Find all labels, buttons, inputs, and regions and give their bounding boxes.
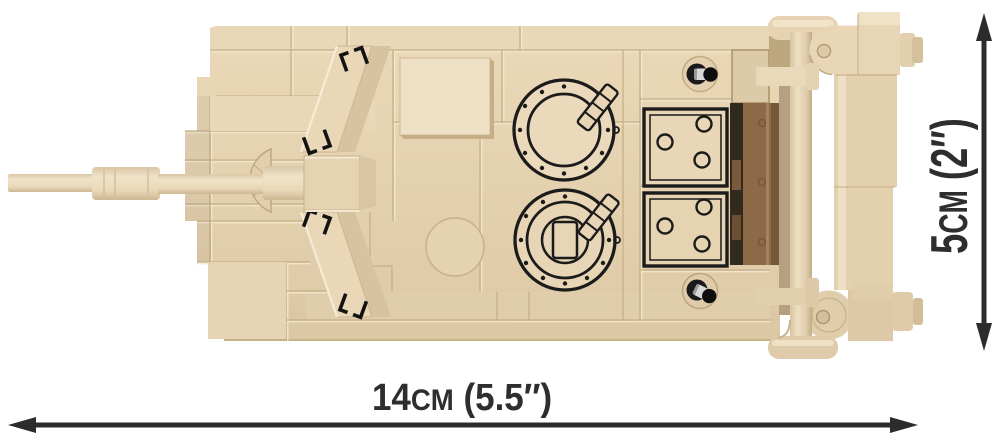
svg-text:14CM (5.5″): 14CM (5.5″)	[372, 376, 552, 419]
